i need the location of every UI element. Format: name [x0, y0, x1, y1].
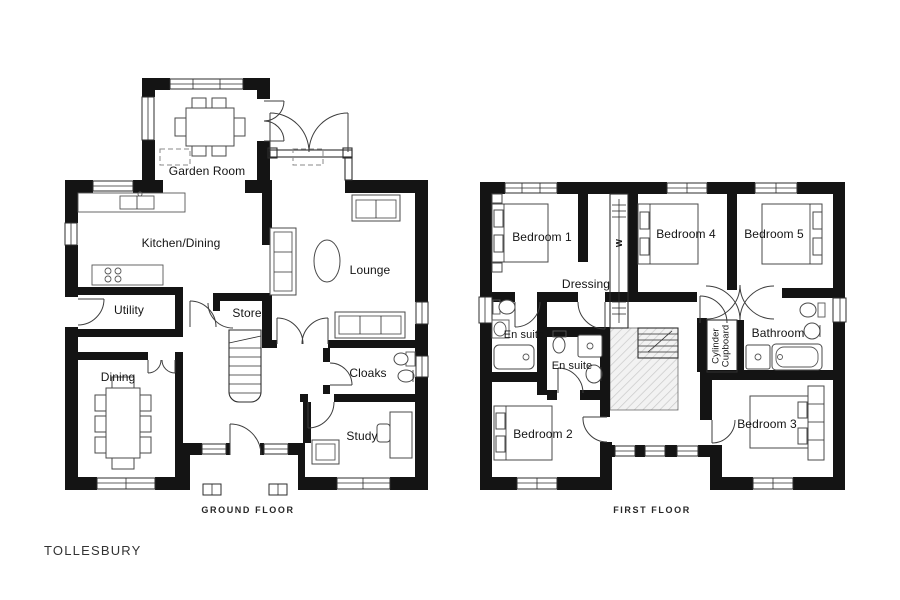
floorplan-canvas: Garden Room Kitchen/Dining Lounge Utilit… [0, 0, 900, 600]
room-label-wardrobe: W [614, 239, 624, 247]
room-label-en-suite-1: En suite [504, 329, 545, 341]
room-label-lounge: Lounge [350, 263, 391, 277]
room-label-dining: Dining [101, 370, 136, 384]
room-label-cylinder-cupboard: Cylinder Cupboard [712, 325, 733, 368]
room-label-bedroom-4: Bedroom 4 [656, 227, 716, 241]
room-label-en-suite-2: En suite [552, 360, 593, 372]
room-label-bedroom-2: Bedroom 2 [513, 427, 573, 441]
room-label-utility: Utility [114, 303, 144, 317]
ground-floor-caption: GROUND FLOOR [201, 505, 294, 515]
room-label-store: Store [232, 306, 261, 320]
ground-floor-stairs [229, 330, 261, 402]
room-label-bathroom: Bathroom [752, 326, 805, 340]
room-label-bedroom-5: Bedroom 5 [744, 227, 804, 241]
room-label-cloaks: Cloaks [349, 366, 386, 380]
first-floor-caption: FIRST FLOOR [613, 505, 691, 515]
room-label-study: Study [346, 429, 377, 443]
room-label-kitchen-dining: Kitchen/Dining [142, 236, 221, 250]
plan-title: TOLLESBURY [44, 543, 142, 558]
room-label-dressing: Dressing [562, 277, 610, 291]
ground-floor-furniture [78, 98, 415, 469]
room-label-bedroom-1: Bedroom 1 [512, 230, 572, 244]
room-label-garden-room: Garden Room [169, 164, 245, 178]
wardrobe-strip [610, 194, 628, 328]
room-label-bedroom-3: Bedroom 3 [737, 417, 797, 431]
floorplan-drawing [0, 0, 900, 600]
